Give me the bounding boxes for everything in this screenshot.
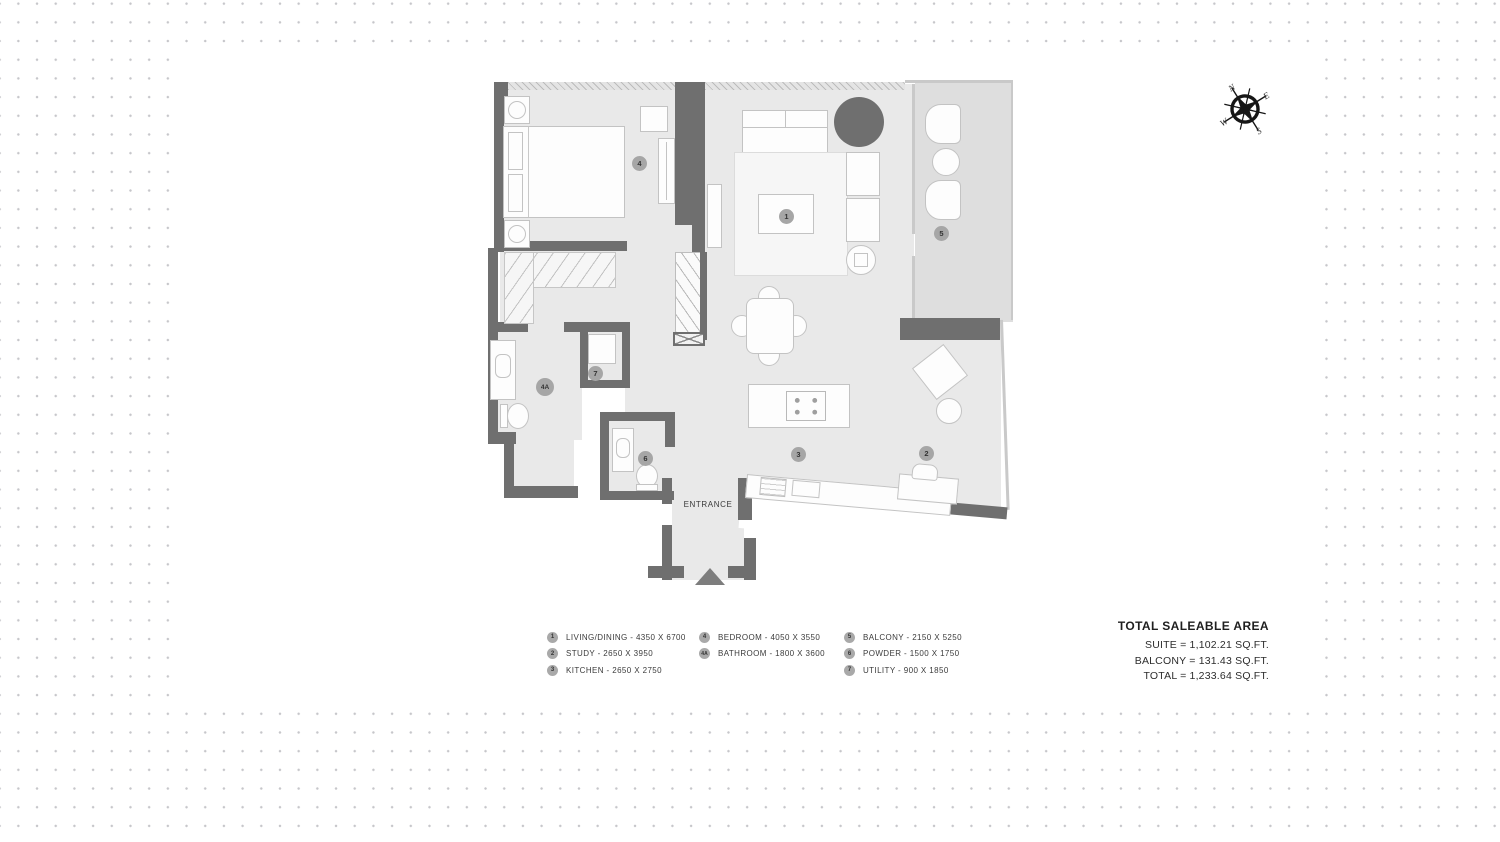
stove-icon [786,391,826,421]
totals-total: TOTAL = 1,233.64 SQ.FT. [1040,669,1269,685]
wall-entrance-foot-right [728,566,756,578]
balcony-top-line [905,80,1013,83]
totals-suite: SUITE = 1,102.21 SQ.FT. [1040,638,1269,654]
room-marker-bedroom: 4 [632,156,647,171]
balcony-right-line [1011,82,1013,320]
window-strip-bedroom [508,82,675,90]
bed-fold-line [528,127,529,217]
living-balcony-glass-upper [912,84,915,234]
legend-marker-4a: 4A [699,648,710,659]
legend-item-kitchen: 3 KITCHEN - 2650 X 2750 [547,664,686,676]
entrance-label: ENTRANCE [670,500,746,509]
wardrobe-side [504,252,534,324]
dining-table [746,298,794,354]
legend-item-powder: 6 POWDER - 1500 X 1750 [844,648,962,660]
lamp-bottom-icon [508,225,526,243]
balcony-chair-1 [925,104,961,144]
oven-icon [759,477,786,497]
legend-label-living: LIVING/DINING - 4350 X 6700 [566,633,686,642]
compass-rose-icon: N E S W [1206,70,1284,148]
legend-marker-6: 6 [844,648,855,659]
service-shaft [675,252,701,334]
legend-item-bedroom: 4 BEDROOM - 4050 X 3550 [699,631,825,643]
dresser [640,106,668,132]
pillow-2 [508,174,523,212]
washer [588,334,616,364]
room-marker-utility: 7 [588,366,603,381]
armchair-1 [846,152,880,196]
legend-label-bedroom: BEDROOM - 4050 X 3550 [718,633,820,642]
legend-marker-1: 1 [547,632,558,643]
legend-column-2: 4 BEDROOM - 4050 X 3550 4A BATHROOM - 18… [699,631,825,664]
study-round-table [936,398,962,424]
room-marker-kitchen: 3 [791,447,806,462]
legend-item-balcony: 5 BALCONY - 2150 X 5250 [844,631,962,643]
room-marker-study: 2 [919,446,934,461]
legend-label-kitchen: KITCHEN - 2650 X 2750 [566,666,662,675]
sink-kitchen [791,480,820,498]
svg-text:E: E [1260,90,1271,102]
room-marker-bathroom: 4A [536,378,554,396]
legend-marker-4: 4 [699,632,710,643]
duct-box [673,332,705,346]
legend-label-balcony: BALCONY - 2150 X 5250 [863,633,962,642]
legend-marker-5: 5 [844,632,855,643]
sliding-door-line [666,142,667,200]
wall-utility-bottom [580,380,630,388]
legend-label-study: STUDY - 2650 X 3950 [566,649,653,658]
lamp-top-icon [508,101,526,119]
legend-item-utility: 7 UTILITY - 900 X 1850 [844,664,962,676]
totals-balcony: BALCONY = 131.43 SQ.FT. [1040,654,1269,670]
floor-plan: 1 2 3 4 4A 5 6 7 ENTRANCE [488,80,1024,592]
wall-powder-right-upper [665,412,675,447]
total-saleable-area: TOTAL SALEABLE AREA SUITE = 1,102.21 SQ.… [1040,619,1269,685]
wall-center-vertical [675,82,705,225]
sink-bathroom [495,354,511,378]
room-marker-powder: 6 [638,451,653,466]
study-right-glass-line [1000,320,1010,510]
side-table-inner [854,253,868,267]
living-balcony-glass-lower [912,256,915,320]
wall-powder-top [600,412,674,421]
legend-label-powder: POWDER - 1500 X 1750 [863,649,959,658]
legend-marker-2: 2 [547,648,558,659]
legend-marker-3: 3 [547,665,558,676]
svg-text:S: S [1254,125,1264,136]
wall-balcony-bottom [900,318,1000,340]
armchair-2 [846,198,880,242]
sofa [742,110,828,156]
legend-item-living: 1 LIVING/DINING - 4350 X 6700 [547,631,686,643]
legend-marker-7: 7 [844,665,855,676]
wall-powder-left [600,412,609,500]
window-strip-living [705,82,905,90]
toilet-powder-tank [636,484,658,491]
shaft-right-wall [700,252,707,340]
wall-entrance-foot-left [648,566,684,578]
legend-label-bathroom: BATHROOM - 1800 X 3600 [718,649,825,658]
balcony-chair-2 [925,180,961,220]
wall-foyer-bottom [504,486,578,498]
room-marker-balcony: 5 [934,226,949,241]
sliding-door-living [707,184,722,248]
sink-powder-basin [616,438,630,458]
legend-column-3: 5 BALCONY - 2150 X 5250 6 POWDER - 1500 … [844,631,962,681]
pillow-1 [508,132,523,170]
balcony-table [932,148,960,176]
room-marker-living: 1 [779,209,794,224]
legend-label-utility: UTILITY - 900 X 1850 [863,666,949,675]
entrance-arrow-icon [695,568,725,585]
legend-column-1: 1 LIVING/DINING - 4350 X 6700 2 STUDY - … [547,631,686,681]
wall-center-lower [692,220,705,254]
legend-item-bathroom: 4A BATHROOM - 1800 X 3600 [699,648,825,660]
totals-title: TOTAL SALEABLE AREA [1040,619,1269,633]
svg-text:W: W [1218,115,1231,128]
plant-dark-circle [834,97,884,147]
wall-above-bath-b [564,322,630,332]
legend-item-study: 2 STUDY - 2650 X 3950 [547,648,686,660]
svg-text:N: N [1226,81,1238,94]
study-desk-chair [911,463,938,481]
toilet-bathroom-bowl [507,403,529,429]
